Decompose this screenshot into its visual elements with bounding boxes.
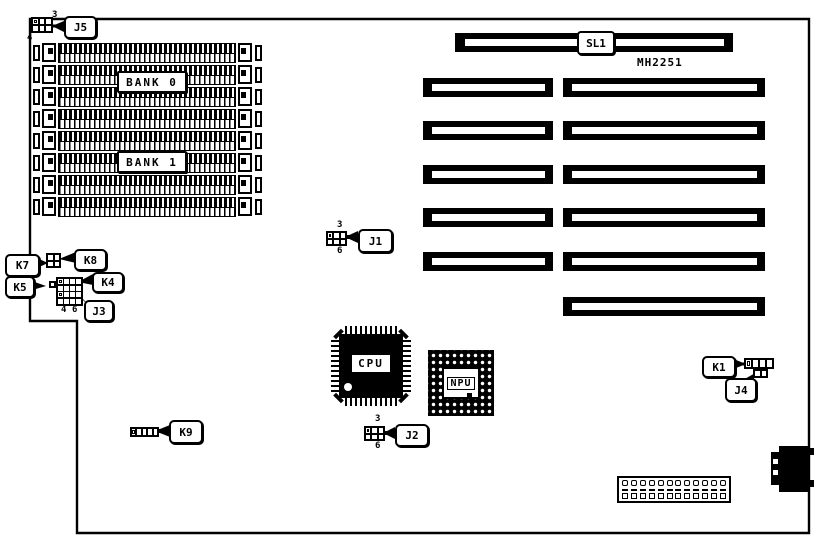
power-connector bbox=[617, 476, 731, 503]
j2-pin-top: 3 bbox=[375, 415, 380, 424]
keyboard-connector-pin bbox=[771, 468, 780, 477]
simm-latch bbox=[238, 131, 252, 150]
simm-bracket bbox=[33, 89, 40, 105]
cpu-chip: CPU bbox=[331, 326, 411, 406]
simm-bracket bbox=[255, 177, 262, 193]
jumper-k7-k8 bbox=[46, 253, 61, 268]
simm-bracket bbox=[33, 111, 40, 127]
simm-bracket bbox=[33, 199, 40, 215]
simm-latch bbox=[42, 197, 56, 216]
cpu-pins-top bbox=[345, 326, 397, 334]
cpu-pins-left bbox=[331, 340, 339, 392]
k5-label-text: K5 bbox=[13, 281, 26, 294]
simm-latch bbox=[42, 175, 56, 194]
simm-latch bbox=[238, 43, 252, 62]
simm-bracket bbox=[255, 45, 262, 61]
j4-label: J4 bbox=[725, 378, 757, 402]
k9-label: K9 bbox=[169, 420, 203, 444]
jumper-k1 bbox=[744, 358, 774, 369]
simm-contacts bbox=[58, 175, 236, 195]
bank1-label: BANK 1 bbox=[117, 151, 187, 173]
npu-inner: NPU bbox=[442, 367, 480, 399]
npu-pin1-mark bbox=[467, 393, 472, 398]
j2-pin-bottom: 6 bbox=[375, 442, 380, 451]
simm-latch bbox=[42, 153, 56, 172]
simm-latch bbox=[238, 153, 252, 172]
jumper-j4 bbox=[753, 369, 768, 378]
simm-slot bbox=[33, 109, 262, 129]
j1-pin-bottom: 6 bbox=[337, 247, 342, 256]
expansion-slot bbox=[563, 78, 765, 97]
sl1-label: SL1 bbox=[577, 31, 615, 55]
simm-bracket bbox=[255, 133, 262, 149]
j2-label: J2 bbox=[395, 424, 429, 447]
j1-pin-top: 3 bbox=[337, 221, 342, 230]
expansion-slot bbox=[423, 252, 553, 271]
j3-pin1-marker bbox=[49, 281, 56, 288]
cpu-pins-bottom bbox=[345, 398, 397, 406]
motherboard-diagram: BANK 0 BANK 1 3 4 J5 SL1 MH2251 3 6 J1 K… bbox=[0, 0, 815, 541]
jumper-j5 bbox=[31, 17, 53, 33]
npu-label: NPU bbox=[447, 377, 474, 390]
simm-slot bbox=[33, 131, 262, 151]
expansion-slot bbox=[423, 78, 553, 97]
j5-label: J5 bbox=[64, 16, 97, 39]
simm-slot bbox=[33, 43, 262, 63]
expansion-slot bbox=[423, 121, 553, 140]
simm-bracket bbox=[33, 67, 40, 83]
j5-pin-bottom: 4 bbox=[27, 34, 32, 43]
bank1-label-text: BANK 1 bbox=[126, 156, 178, 169]
j2-label-text: J2 bbox=[405, 429, 418, 442]
k7-label-text: K7 bbox=[16, 259, 29, 272]
simm-slot bbox=[33, 197, 262, 217]
simm-bracket bbox=[255, 199, 262, 215]
j1-label: J1 bbox=[358, 229, 393, 253]
expansion-slot bbox=[563, 297, 765, 316]
simm-bracket bbox=[33, 177, 40, 193]
simm-bracket bbox=[255, 111, 262, 127]
simm-contacts bbox=[58, 131, 236, 151]
k4-label: K4 bbox=[92, 272, 124, 293]
k1-label: K1 bbox=[702, 356, 736, 378]
simm-contacts bbox=[58, 109, 236, 129]
k8-label-text: K8 bbox=[84, 254, 97, 267]
j3-pin-right: 6 bbox=[72, 306, 77, 315]
simm-bracket bbox=[33, 133, 40, 149]
bank0-label: BANK 0 bbox=[117, 71, 187, 93]
simm-contacts bbox=[58, 43, 236, 63]
simm-latch bbox=[238, 197, 252, 216]
expansion-slot bbox=[563, 208, 765, 227]
expansion-slot bbox=[563, 252, 765, 271]
jumper-j1 bbox=[326, 231, 347, 246]
power-connector-pins bbox=[622, 480, 726, 486]
power-connector-dashes bbox=[622, 489, 726, 491]
simm-bracket bbox=[255, 89, 262, 105]
simm-contacts bbox=[58, 197, 236, 217]
simm-latch bbox=[42, 87, 56, 106]
simm-latch bbox=[42, 109, 56, 128]
cpu-label: CPU bbox=[352, 355, 390, 372]
j1-label-text: J1 bbox=[369, 235, 382, 248]
expansion-slot bbox=[423, 165, 553, 184]
simm-bracket bbox=[255, 155, 262, 171]
simm-latch bbox=[238, 109, 252, 128]
j3-label-text: J3 bbox=[92, 305, 105, 318]
simm-latch bbox=[238, 175, 252, 194]
bank0-label-text: BANK 0 bbox=[126, 76, 178, 89]
npu-chip: NPU bbox=[428, 350, 494, 416]
k7-label: K7 bbox=[5, 254, 40, 277]
k5-label: K5 bbox=[5, 276, 35, 298]
simm-latch bbox=[42, 65, 56, 84]
expansion-slot bbox=[563, 121, 765, 140]
jumper-j2 bbox=[364, 426, 385, 441]
k1-label-text: K1 bbox=[712, 361, 725, 374]
cpu-pins-right bbox=[403, 340, 411, 392]
sl1-label-text: SL1 bbox=[586, 37, 606, 50]
simm-slot bbox=[33, 175, 262, 195]
keyboard-connector-pin bbox=[771, 457, 780, 466]
j4-label-text: J4 bbox=[734, 384, 747, 397]
k9-label-text: K9 bbox=[179, 426, 192, 439]
simm-latch bbox=[238, 87, 252, 106]
k8-label: K8 bbox=[74, 249, 107, 271]
jumper-k9 bbox=[130, 427, 159, 437]
simm-latch bbox=[238, 65, 252, 84]
expansion-slot bbox=[423, 208, 553, 227]
simm-bracket bbox=[255, 67, 262, 83]
j5-label-text: J5 bbox=[74, 21, 87, 34]
cpu-pin1-dot bbox=[344, 383, 352, 391]
pointer-j5-tip bbox=[52, 21, 64, 32]
power-connector-sockets bbox=[622, 493, 726, 499]
j5-pin-top: 3 bbox=[52, 11, 57, 20]
simm-bracket bbox=[33, 45, 40, 61]
k4-label-text: K4 bbox=[101, 276, 114, 289]
j3-label: J3 bbox=[84, 300, 114, 322]
simm-latch bbox=[42, 43, 56, 62]
expansion-slot bbox=[563, 165, 765, 184]
jumper-j3 bbox=[56, 277, 83, 306]
part-number-text: MH2251 bbox=[637, 56, 683, 69]
simm-bracket bbox=[33, 155, 40, 171]
j3-pin-left: 4 bbox=[61, 306, 66, 315]
simm-latch bbox=[42, 131, 56, 150]
